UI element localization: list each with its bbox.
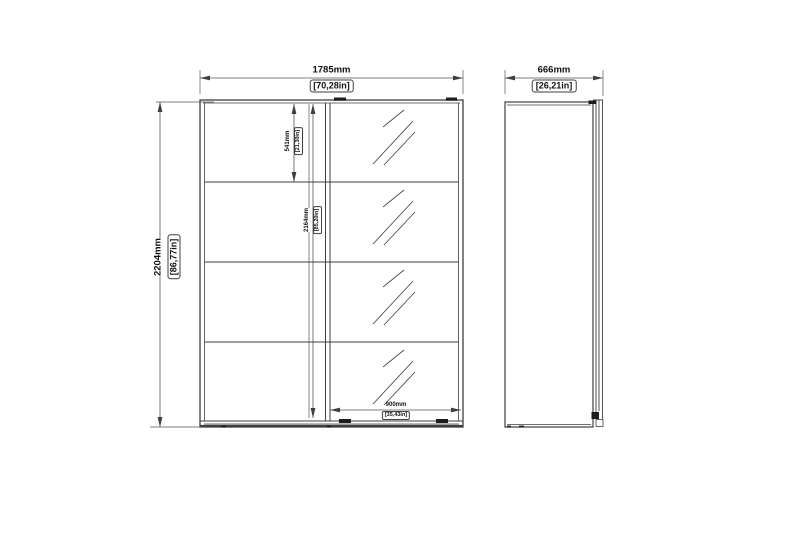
technical-drawing: 1785mm [70,28in] 666mm [26,21in] 2204mm … <box>0 0 800 533</box>
dimension-lines <box>150 70 603 427</box>
shelf-lines <box>205 182 459 342</box>
front-view <box>200 98 463 428</box>
base-plinth <box>200 421 463 426</box>
side-door-hardware <box>507 101 603 428</box>
side-door-panel <box>593 100 603 419</box>
side-view <box>505 100 603 427</box>
extension-lines <box>150 70 603 427</box>
mirror-hatch-section-4 <box>373 350 415 405</box>
front-outline <box>200 100 463 427</box>
drawing-linework <box>0 0 800 533</box>
door-hardware <box>221 98 457 428</box>
side-outline <box>505 102 593 427</box>
mirror-hatch <box>373 110 415 405</box>
mirror-hatch-section-1 <box>373 110 415 165</box>
mirror-hatch-section-2 <box>373 190 415 245</box>
mirror-hatch-section-3 <box>373 270 415 325</box>
